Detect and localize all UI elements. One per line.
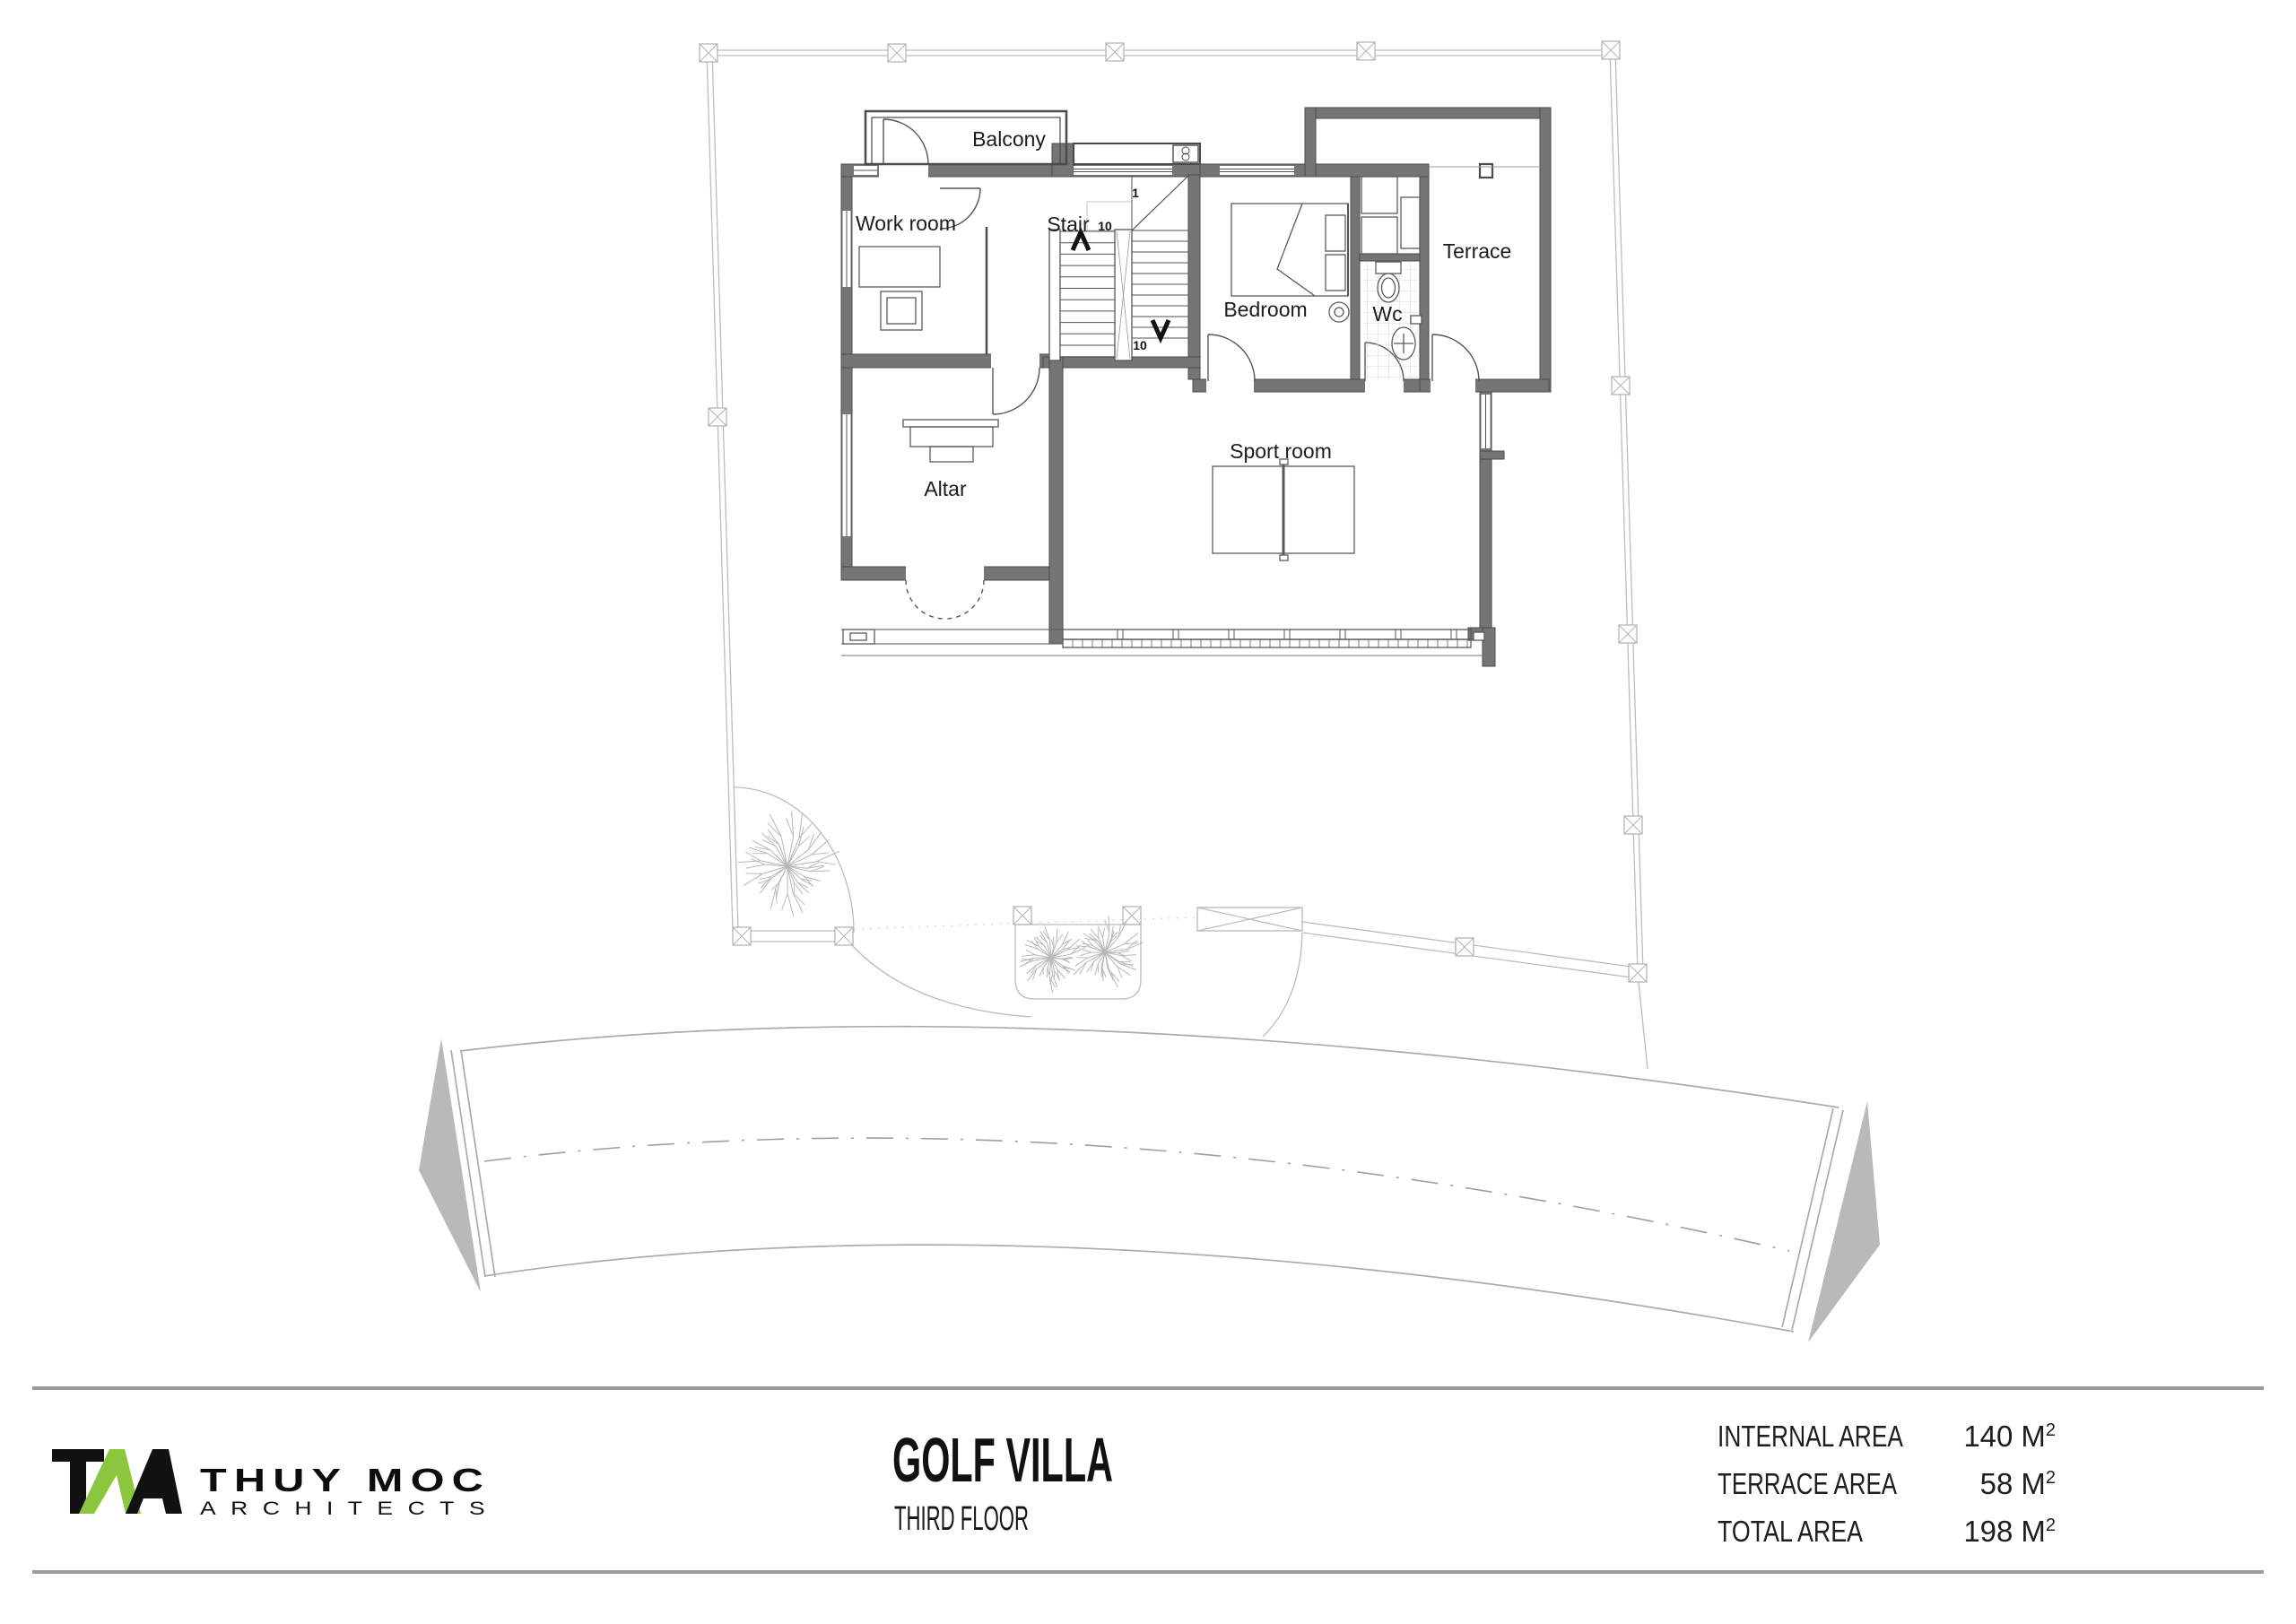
area-row-value: 58M2 — [1980, 1467, 2056, 1500]
room-label-terrace: Terrace — [1443, 239, 1512, 263]
road-bottom-edge — [484, 1245, 1794, 1332]
bedroom-door — [1208, 334, 1255, 381]
column-marker-icon — [1106, 43, 1124, 61]
column-marker-icon — [709, 408, 726, 426]
road-end-cap-left — [419, 1038, 481, 1292]
company-name: THUY MOC — [200, 1462, 491, 1498]
area-value-number: 140 — [1963, 1420, 2013, 1453]
column-marker-icon — [1013, 907, 1031, 925]
road-top-edge — [460, 1027, 1839, 1107]
column-marker-icon — [1602, 41, 1620, 59]
area-value-number: 198 — [1963, 1515, 2013, 1548]
porch-step — [843, 630, 874, 644]
wardrobe — [1361, 177, 1420, 254]
building-walls — [841, 108, 1551, 666]
room-label-work-room: Work room — [856, 212, 956, 235]
gate-swing-arc — [1263, 933, 1302, 1037]
tree-branch — [745, 873, 762, 874]
floor-plan-canvas: 1 10 10 — [0, 0, 2296, 1624]
terrace-door — [1432, 334, 1479, 381]
area-row-label: TERRACE AREA — [1718, 1467, 1897, 1500]
balcony-door — [883, 119, 928, 164]
room-label-wc: Wc — [1372, 302, 1402, 326]
road-centerline — [484, 1138, 1789, 1251]
area-row-value: 198M2 — [1963, 1515, 2056, 1548]
altar-double-door-opening — [906, 566, 984, 581]
room-label-sport-room: Sport room — [1230, 439, 1332, 463]
altar-door — [993, 368, 1039, 414]
column-marker-icon — [1629, 964, 1647, 982]
altar-double-door — [906, 580, 984, 619]
title-block-bottom-rule — [32, 1570, 2264, 1574]
column-marker-icon — [1456, 938, 1474, 956]
title-block-top-rule — [32, 1386, 2264, 1390]
stair: 1 10 10 — [1049, 176, 1188, 360]
wc-door-opening — [1365, 378, 1404, 393]
tree-branch — [782, 894, 787, 910]
column-marker-icon — [700, 44, 717, 62]
stair-down-arrow-icon — [1152, 320, 1169, 338]
bed — [1231, 204, 1348, 296]
area-value-unit: M — [2021, 1467, 2046, 1500]
sheet-floor: THIRD FLOOR — [894, 1500, 1029, 1538]
sheet-title: GOLF VILLA — [892, 1425, 1113, 1495]
column-marker-icon — [1357, 42, 1375, 60]
column-marker-icon — [1624, 816, 1642, 834]
company-tagline: ARCHITECTS — [200, 1498, 500, 1519]
column-marker-icon — [1123, 907, 1141, 925]
tree-branch — [817, 862, 836, 865]
area-row-value: 140M2 — [1963, 1420, 2056, 1453]
room-label-balcony: Balcony — [972, 127, 1046, 151]
driveway-curve — [850, 943, 1031, 1017]
altar-table — [903, 420, 998, 427]
column-marker-icon — [888, 44, 906, 62]
area-row-label: TOTAL AREA — [1718, 1515, 1863, 1548]
bedroom-door-opening — [1206, 378, 1254, 393]
area-value-unit: M — [2021, 1420, 2046, 1453]
column-marker-icon — [835, 927, 853, 945]
room-label-altar: Altar — [924, 477, 967, 500]
tree-branch — [768, 823, 781, 837]
room-label-stair: Stair — [1047, 213, 1090, 236]
area-value-sup: 2 — [2046, 1468, 2056, 1488]
ping-pong-table — [1213, 459, 1354, 560]
tree-branch — [793, 892, 804, 905]
terrace-column — [1480, 164, 1492, 178]
ceiling-fan-icon — [1329, 302, 1349, 322]
stair-number-top: 1 — [1132, 186, 1139, 200]
toilet-tank — [1376, 262, 1401, 274]
area-table: INTERNAL AREA TERRACE AREA TOTAL AREA 14… — [1718, 1420, 2056, 1548]
stair-break-line — [1132, 176, 1188, 230]
tree-branch — [797, 882, 808, 888]
column-marker-icon — [733, 927, 751, 945]
column-marker-icon — [1612, 377, 1630, 395]
column-marker-icon — [1619, 625, 1637, 643]
altar-door-opening — [991, 353, 1039, 369]
room-label-bedroom: Bedroom — [1223, 298, 1307, 321]
tree-branch — [794, 882, 795, 893]
tma-monogram-icon — [52, 1449, 182, 1514]
road — [419, 1027, 1880, 1342]
stair-number-mid: 10 — [1098, 219, 1112, 233]
railing-band — [841, 630, 1492, 656]
area-value-unit: M — [2021, 1515, 2046, 1548]
stair-number-bottom: 10 — [1133, 338, 1147, 352]
work-desk — [859, 247, 940, 287]
terrace-door-opening — [1431, 378, 1475, 393]
ledge-and-heater — [1074, 143, 1200, 164]
tree-icon — [738, 812, 839, 916]
title-block: THUY MOC ARCHITECTS GOLF VILLA THIRD FLO… — [32, 1386, 2264, 1574]
area-value-number: 58 — [1980, 1467, 2013, 1500]
area-row-label: INTERNAL AREA — [1718, 1420, 1903, 1453]
area-value-sup: 2 — [2046, 1515, 2056, 1535]
shelf-icon — [1411, 316, 1422, 324]
area-value-sup: 2 — [2046, 1420, 2056, 1440]
drawing-sheet: 1 10 10 — [0, 0, 2296, 1624]
road-end-cap-right — [1808, 1101, 1880, 1342]
balcony-door-opening — [879, 163, 928, 178]
planter-edge-arc — [734, 787, 854, 933]
